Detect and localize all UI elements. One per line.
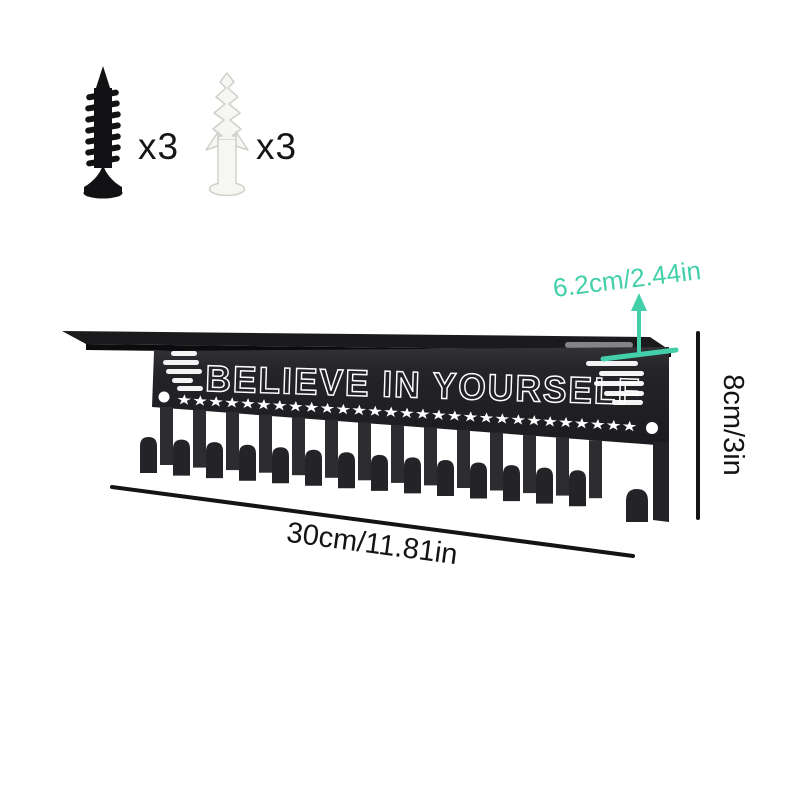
right-end-plate — [653, 441, 669, 522]
up-arrow-icon — [631, 293, 647, 311]
product-dimension-diagram: x3 x3 — [0, 0, 800, 800]
medal-hanger-render: BELIEVE IN YOURSELF ★★★★★★★★★★★★★★★★★★★★… — [0, 0, 800, 800]
right-end-hook-tip — [626, 489, 648, 522]
height-dimension-label: 8cm/3in — [719, 363, 749, 487]
mounting-hole-right — [646, 422, 658, 434]
mounting-hole-left — [159, 392, 170, 403]
